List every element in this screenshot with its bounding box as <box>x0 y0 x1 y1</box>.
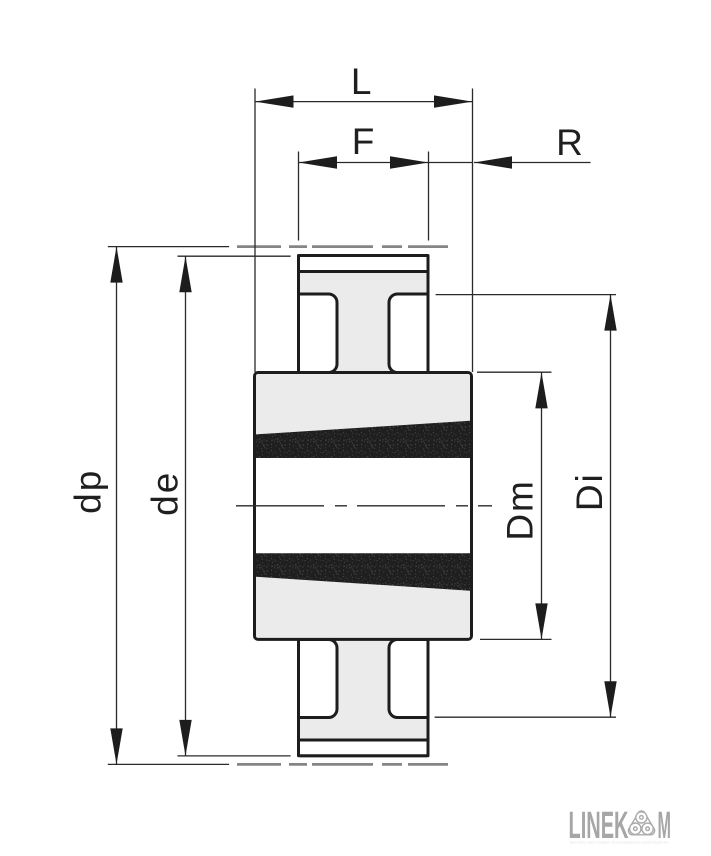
svg-text:R: R <box>556 122 583 163</box>
svg-text:de: de <box>145 471 186 516</box>
svg-text:Dm: Dm <box>499 479 540 541</box>
svg-text:Di: Di <box>569 472 610 511</box>
svg-text:dp: dp <box>68 469 109 514</box>
svg-text:MOTION AND POWER TRANSMISSION: MOTION AND POWER TRANSMISSION COMPONENTS <box>570 840 668 845</box>
svg-text:F: F <box>352 121 375 162</box>
svg-text:L: L <box>351 61 372 102</box>
